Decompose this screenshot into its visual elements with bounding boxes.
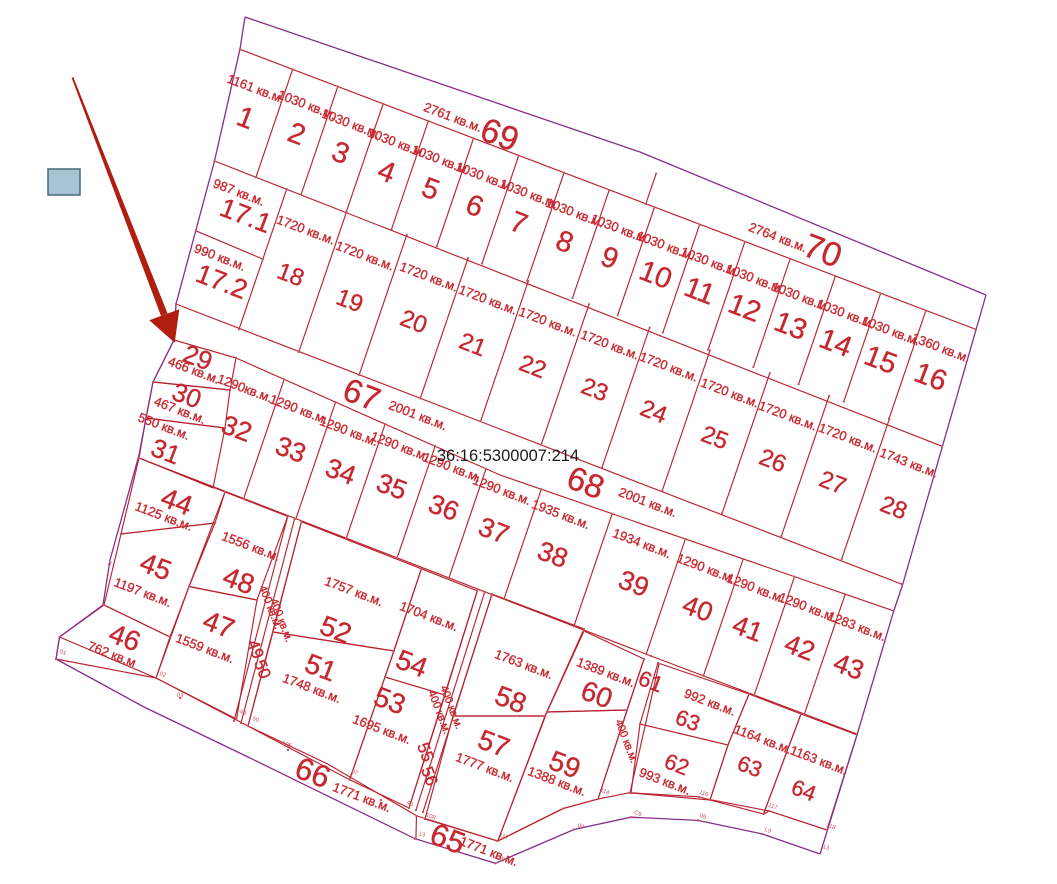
svg-text:36:16:5300007:214: 36:16:5300007:214 (437, 447, 579, 465)
